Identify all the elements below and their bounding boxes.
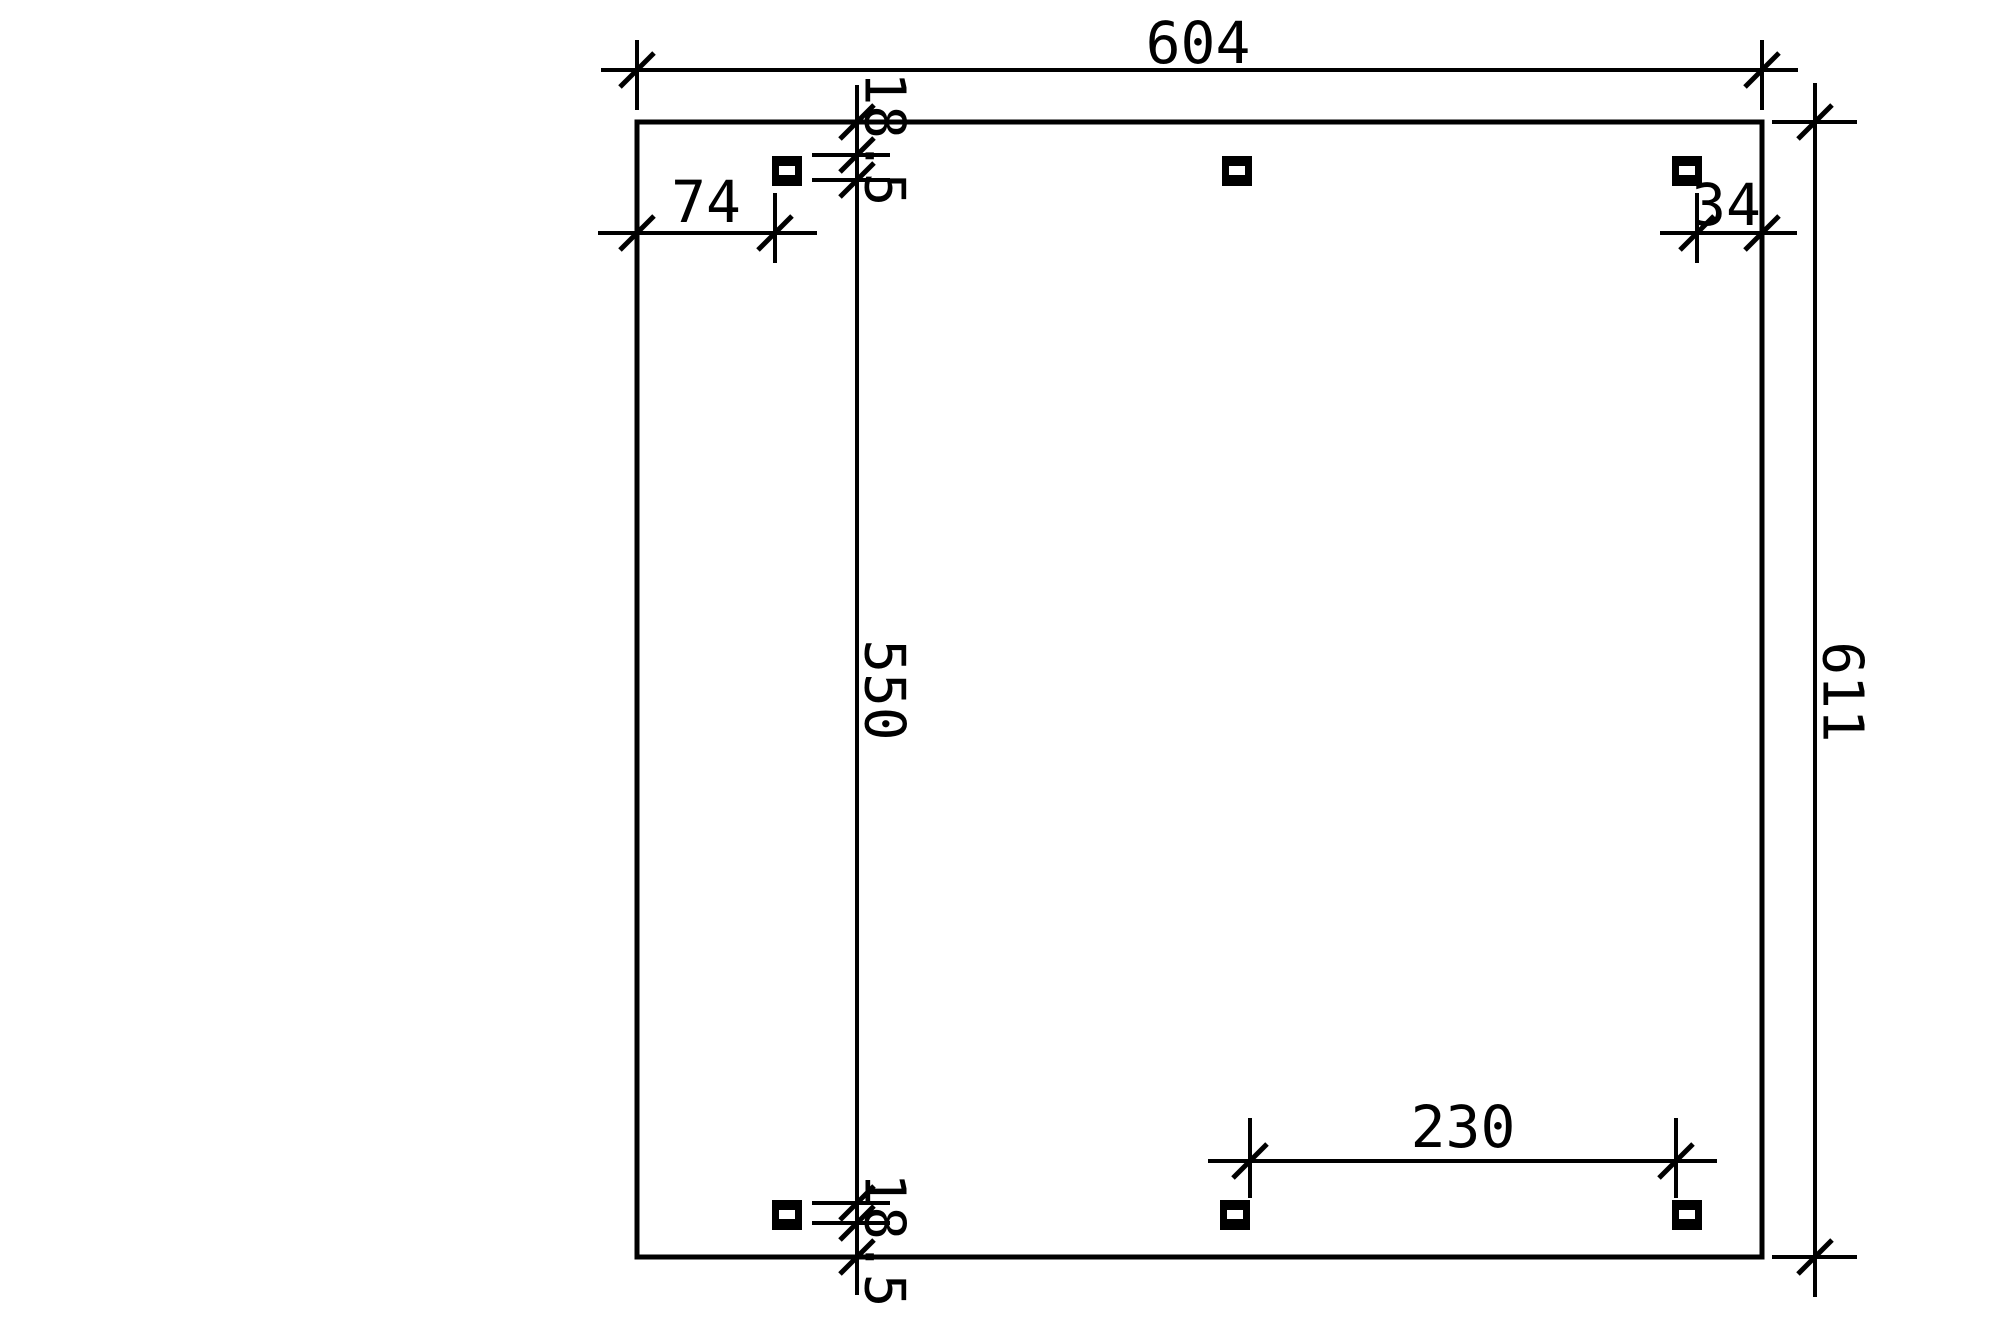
dim-label-post-to-post-vertical: 550 [852,639,917,740]
dim-label-overall-width: 604 [1146,9,1251,77]
drawing-canvas: 604 611 18.5 550 18.5 [0,0,2000,1333]
post-marker-bottom-left [772,1200,802,1230]
plan-drawing: 604 611 18.5 550 18.5 [0,0,2000,1333]
dim-overall-width: 604 [601,9,1798,110]
post-anchor-slot [779,166,795,175]
dim-label-overall-height: 611 [1810,641,1875,742]
post-marker-bottom-center [1220,1200,1250,1230]
post-marker-top-right [1672,156,1702,186]
dim-label-post-clear-spacing: 230 [1411,1093,1516,1161]
post-anchor-slot [1227,1210,1243,1219]
dim-label-post-offset-left: 74 [671,168,741,236]
post-anchor-slot [1679,166,1695,175]
dim-label-edge-to-post-bottom: 18.5 [852,1173,917,1308]
post-marker-bottom-right [1672,1200,1702,1230]
dim-overall-height: 611 [1772,83,1875,1297]
post-marker-top-left [772,156,802,186]
dim-label-edge-to-post-top: 18.5 [852,72,917,207]
plan-outline [637,122,1762,1257]
post-anchor-slot [1679,1210,1695,1219]
post-anchor-slot [1229,166,1245,175]
dim-vertical-chain: 18.5 550 18.5 [812,72,917,1308]
post-anchor-slot [779,1210,795,1219]
post-marker-top-center [1222,156,1252,186]
dim-post-clear-spacing: 230 [1208,1093,1717,1198]
